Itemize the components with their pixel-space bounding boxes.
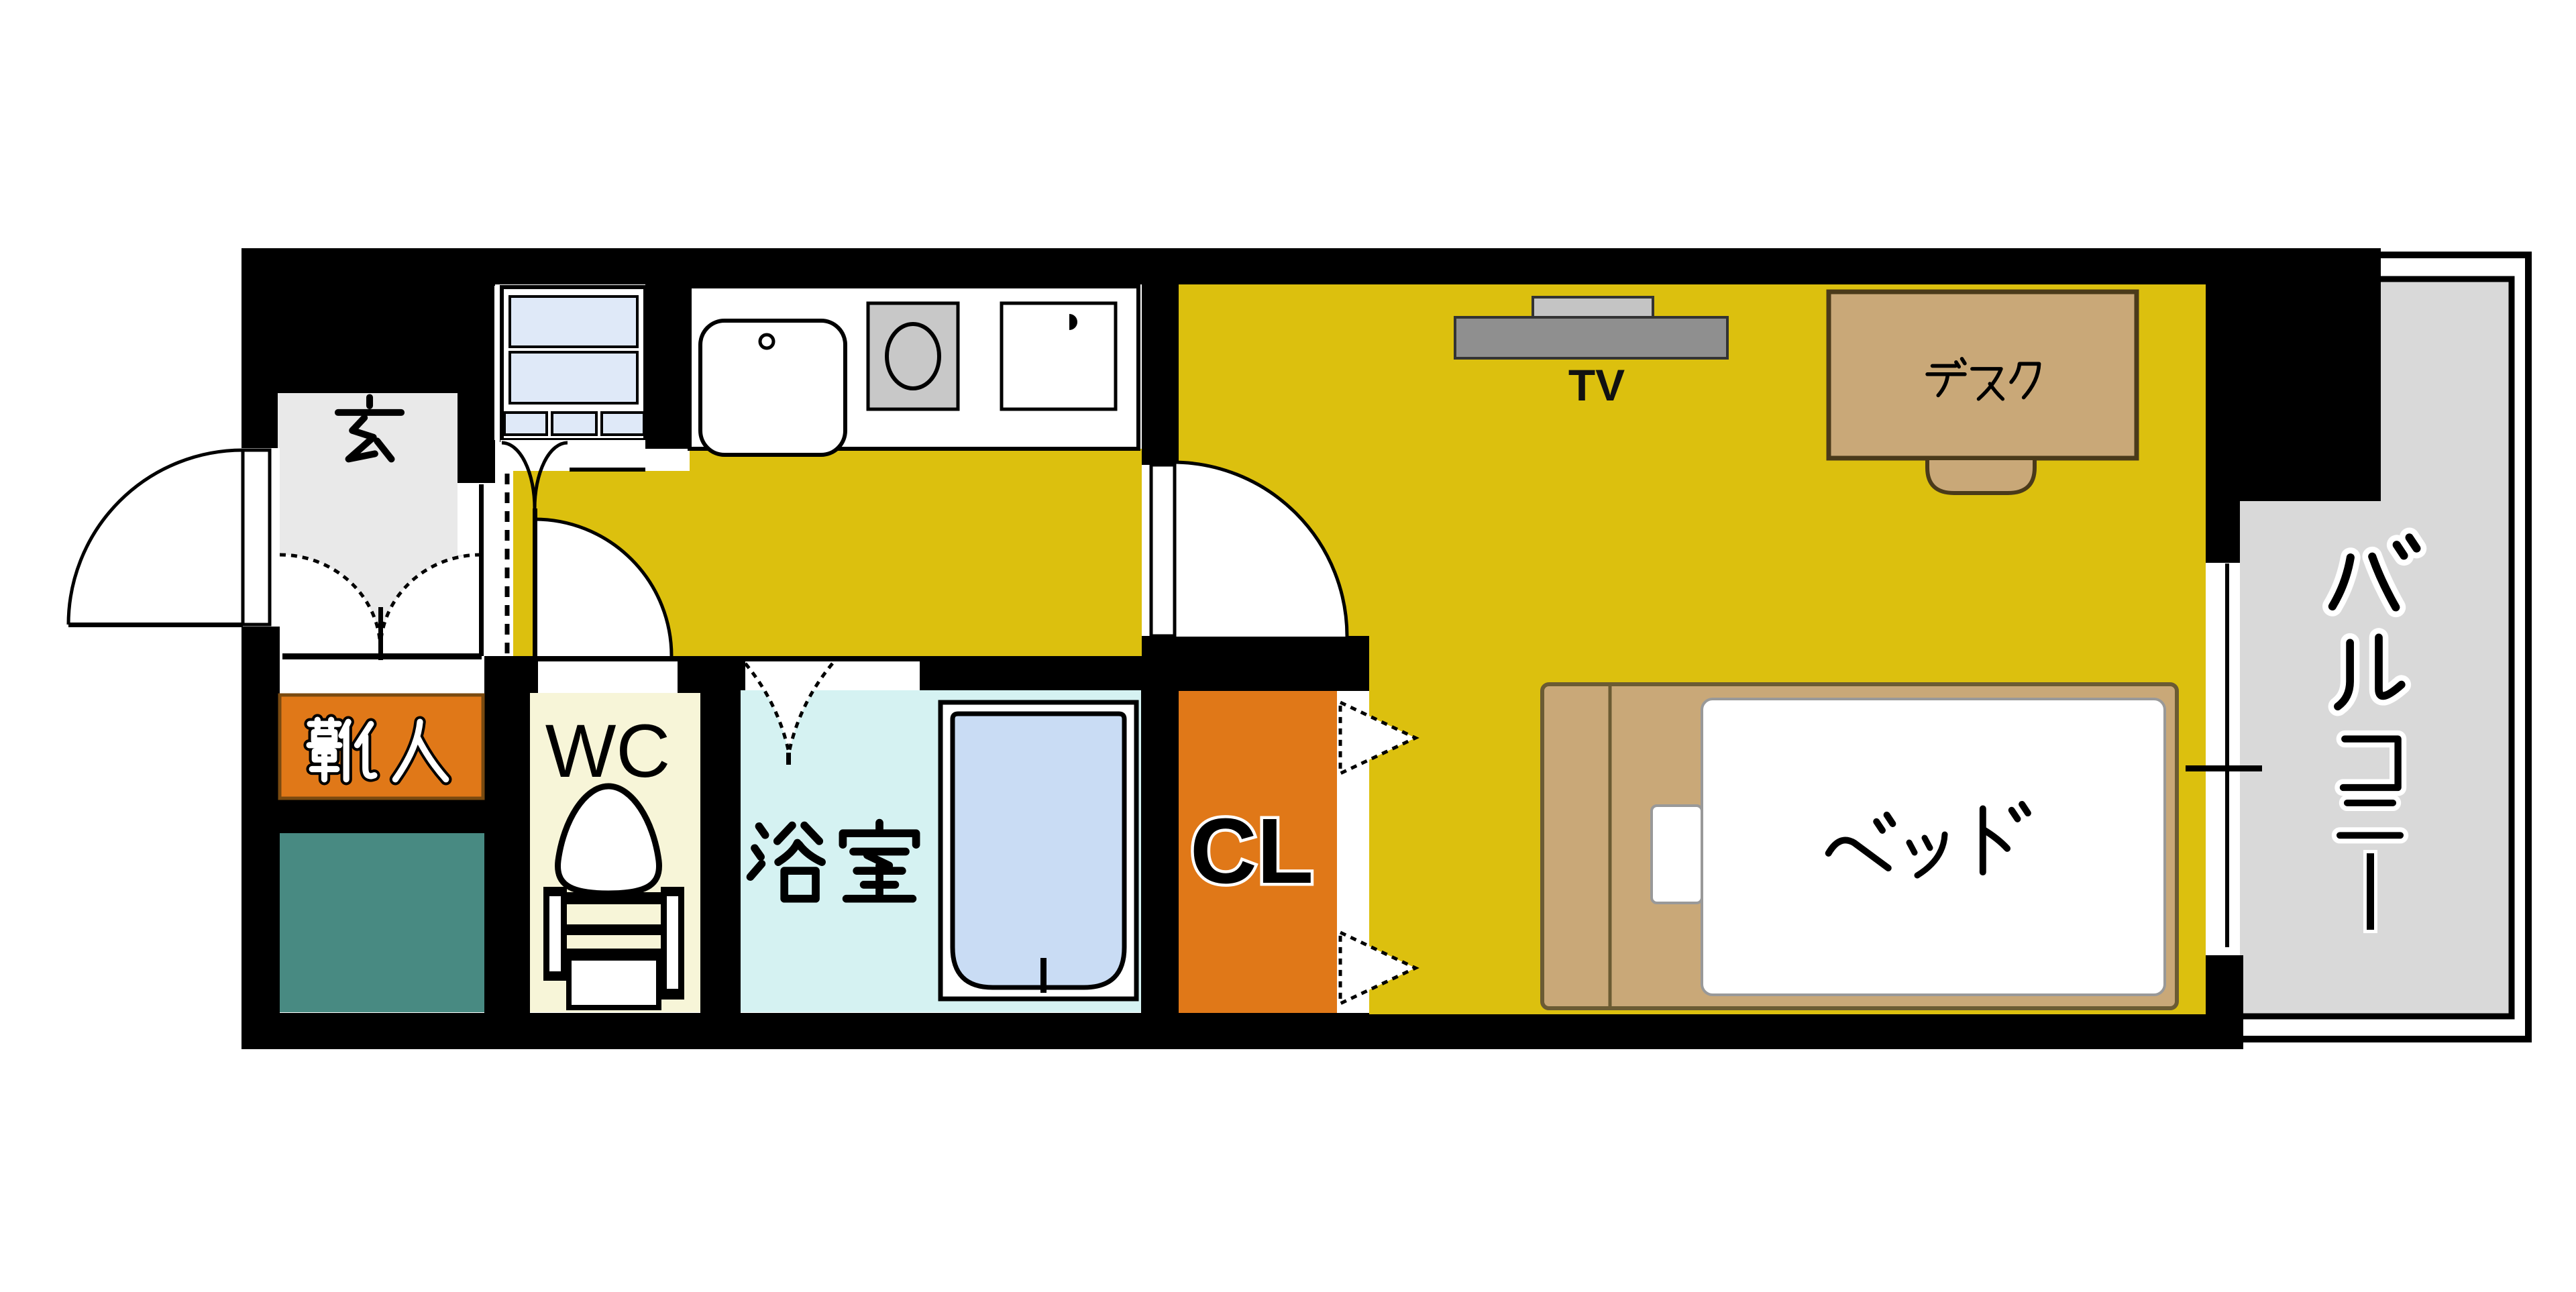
svg-text:TV: TV [1568, 360, 1625, 410]
svg-text:CL: CL [1190, 800, 1313, 903]
svg-text:WC: WC [545, 709, 671, 793]
